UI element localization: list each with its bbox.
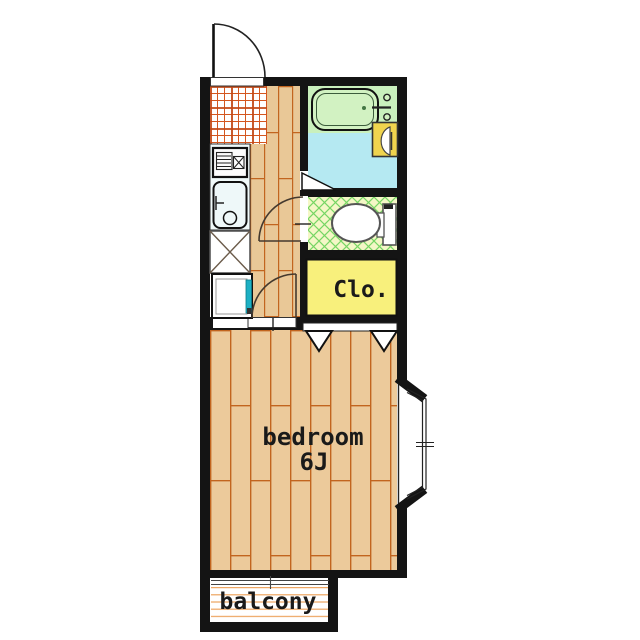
wall-right-lower bbox=[397, 506, 407, 578]
toilet bbox=[332, 204, 396, 245]
washbasin bbox=[373, 123, 398, 157]
bedroom-door-opening bbox=[248, 318, 296, 328]
toilet-bowl bbox=[332, 204, 380, 242]
hallway-floor bbox=[250, 144, 300, 317]
entrance-door bbox=[214, 24, 266, 77]
bay-window-mullion bbox=[416, 443, 434, 447]
bay-wall-bottom bbox=[401, 492, 421, 507]
bay-window-glass-inner bbox=[407, 393, 423, 496]
hallway-floor-upper bbox=[267, 86, 300, 144]
bay-window bbox=[399, 381, 435, 507]
floor-plan-drawing: bedroom 6J Clo. balcony bbox=[0, 0, 640, 640]
toilet-door-opening bbox=[300, 196, 308, 242]
balcony-label: balcony bbox=[220, 589, 317, 615]
bay-wall-top bbox=[401, 381, 421, 396]
wall-right-upper bbox=[397, 77, 407, 382]
balcony-wall-right bbox=[328, 578, 338, 632]
kitchen-tile-floor bbox=[210, 86, 267, 144]
entrance-door-swing-arc bbox=[214, 24, 265, 77]
refrigerator-space bbox=[210, 231, 250, 273]
wall-bedroom-bottom bbox=[200, 570, 407, 578]
bay-window-glass-outer bbox=[407, 389, 426, 499]
bathtub bbox=[312, 89, 378, 130]
entrance-threshold bbox=[211, 78, 264, 87]
closet-label: Clo. bbox=[333, 277, 388, 303]
toilet-controls bbox=[384, 205, 393, 210]
closet-opening bbox=[303, 323, 397, 331]
kitchen-sink bbox=[214, 182, 247, 228]
tub-drain bbox=[362, 106, 366, 110]
washer-nook-opening bbox=[213, 318, 248, 328]
toilet-tank bbox=[383, 204, 396, 245]
washing-machine-pan bbox=[212, 274, 252, 318]
stove bbox=[213, 148, 247, 177]
bedroom-size-label: 6J bbox=[300, 448, 329, 476]
bedroom-label: bedroom bbox=[262, 423, 363, 451]
floor-plan: bedroom 6J Clo. balcony bbox=[0, 0, 640, 640]
balcony-wall-bottom bbox=[200, 622, 338, 632]
